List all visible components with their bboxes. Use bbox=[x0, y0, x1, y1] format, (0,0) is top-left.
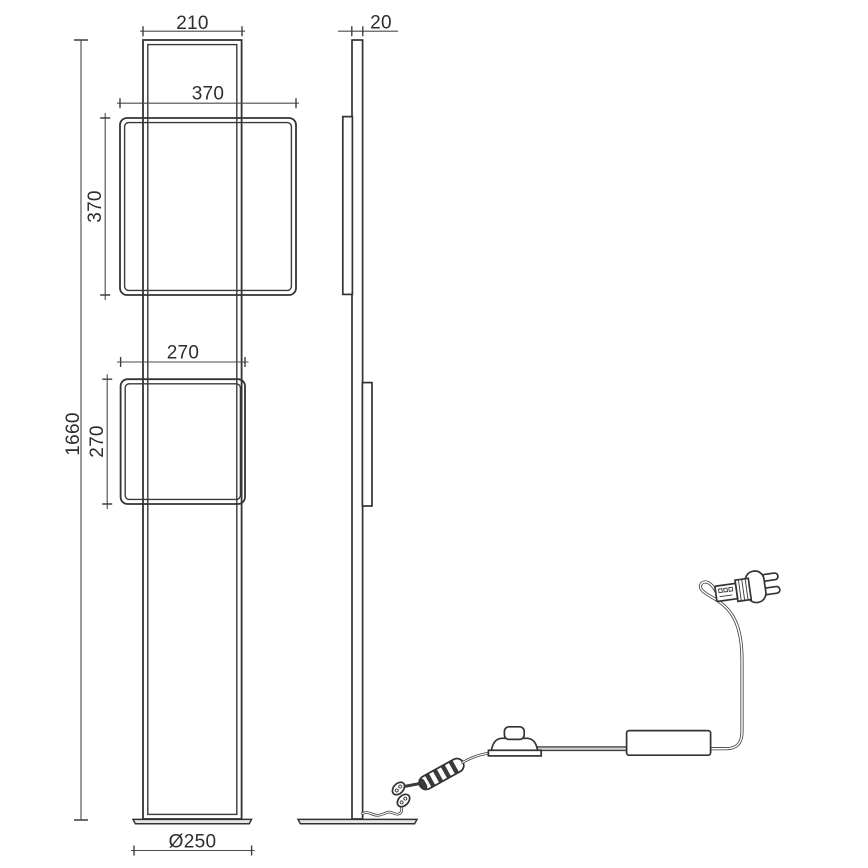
dim-base-diameter: Ø250 bbox=[131, 832, 255, 856]
dim-column-depth: 20 bbox=[338, 13, 398, 37]
dim-label-base-diameter: Ø250 bbox=[169, 832, 217, 853]
frame-small-outer bbox=[121, 379, 245, 504]
frame-large-outer bbox=[120, 118, 296, 295]
column-outline-inner bbox=[148, 45, 237, 815]
cord-grip-cylinder bbox=[417, 756, 467, 792]
cord-to-switch bbox=[463, 753, 491, 763]
frame-large-profile bbox=[343, 117, 353, 295]
dim-frame-small-height: 270 bbox=[87, 374, 112, 509]
floor-lamp-dimension-drawing: 210 370 370 270 270 1660 bbox=[0, 0, 868, 868]
dim-label-1660: 1660 bbox=[63, 412, 84, 455]
coupler-neck bbox=[404, 784, 420, 787]
foot-switch bbox=[488, 727, 541, 756]
technical-drawing-canvas: 210 370 370 270 270 1660 bbox=[0, 0, 868, 868]
column-outline-outer bbox=[143, 40, 242, 819]
driver-box bbox=[627, 731, 711, 756]
frame-small-profile bbox=[362, 383, 372, 506]
cord-driver-plug bbox=[700, 582, 742, 749]
foot-switch-base bbox=[488, 750, 541, 756]
frame-large-inner bbox=[125, 123, 292, 291]
dim-label-20: 20 bbox=[370, 13, 392, 34]
dim-label-270-width: 270 bbox=[167, 343, 200, 364]
dim-top-width: 210 bbox=[140, 13, 245, 36]
front-view bbox=[120, 40, 296, 824]
base-plate-front bbox=[133, 819, 252, 823]
dim-frame-large-height: 370 bbox=[85, 113, 110, 300]
column-profile bbox=[352, 40, 363, 819]
plug-label-block bbox=[715, 583, 738, 601]
mains-plug bbox=[713, 568, 781, 608]
dim-label-370-height: 370 bbox=[85, 190, 106, 223]
cord-driver-plug-core bbox=[700, 582, 742, 749]
dim-frame-small-width: 270 bbox=[117, 343, 249, 368]
dim-label-370-width: 370 bbox=[192, 84, 225, 105]
dim-label-210: 210 bbox=[176, 13, 209, 34]
base-plate-side bbox=[298, 819, 417, 823]
power-cord-assembly bbox=[363, 568, 782, 816]
side-view bbox=[298, 40, 417, 824]
dim-frame-large-width: 370 bbox=[117, 84, 299, 109]
foot-switch-button bbox=[504, 727, 524, 740]
dim-overall-height: 1660 bbox=[63, 40, 88, 820]
dim-label-270-height: 270 bbox=[87, 425, 108, 458]
